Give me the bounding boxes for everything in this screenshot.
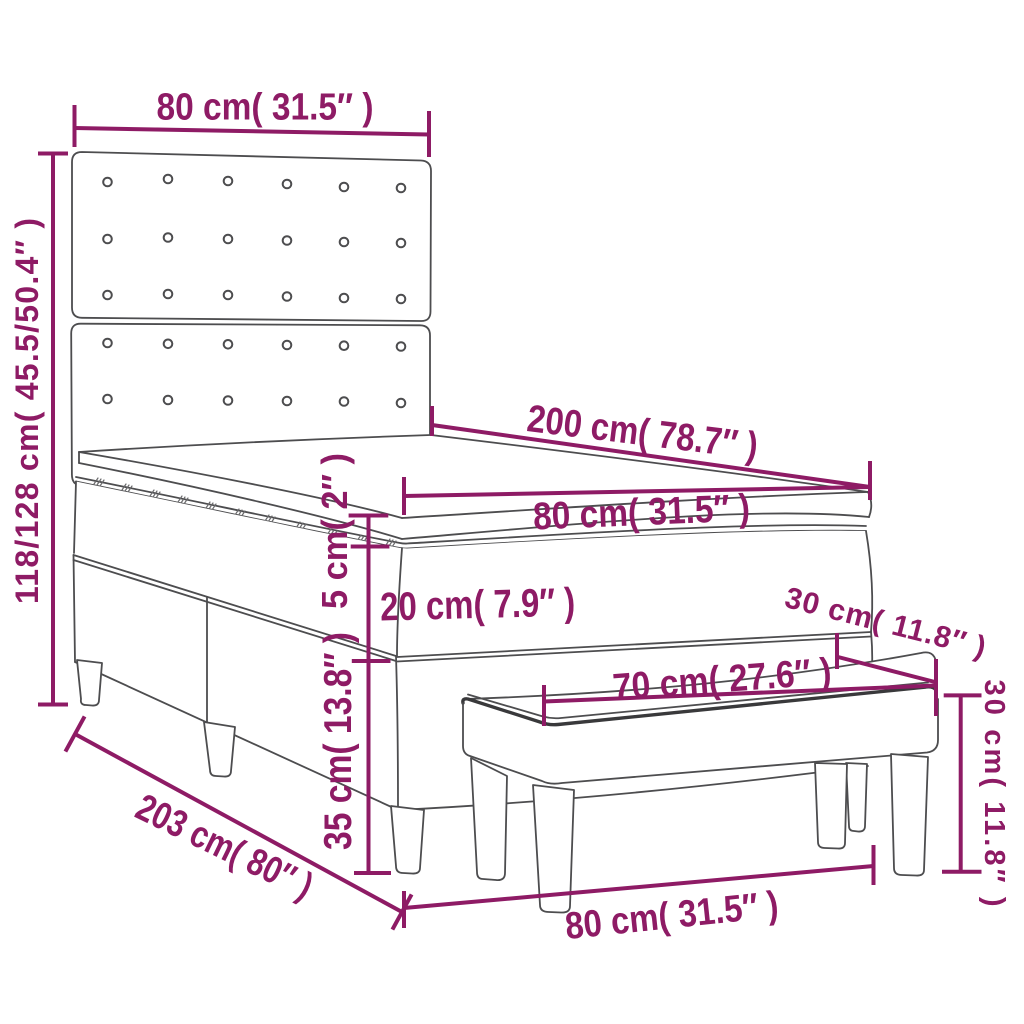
svg-text:30 cm( 11.8″ ): 30 cm( 11.8″ ) bbox=[978, 680, 1010, 907]
svg-text:80 cm( 31.5″ ): 80 cm( 31.5″ ) bbox=[157, 87, 374, 129]
svg-text:20 cm( 7.9″ ): 20 cm( 7.9″ ) bbox=[380, 580, 576, 629]
svg-text:118/128 cm( 45.5/50.4″ ): 118/128 cm( 45.5/50.4″ ) bbox=[9, 218, 45, 604]
svg-text:5 cm( 2″ ): 5 cm( 2″ ) bbox=[314, 453, 355, 609]
svg-text:35 cm( 13.8″ ): 35 cm( 13.8″ ) bbox=[317, 632, 360, 850]
svg-text:80 cm( 31.5″ ): 80 cm( 31.5″ ) bbox=[532, 486, 751, 538]
